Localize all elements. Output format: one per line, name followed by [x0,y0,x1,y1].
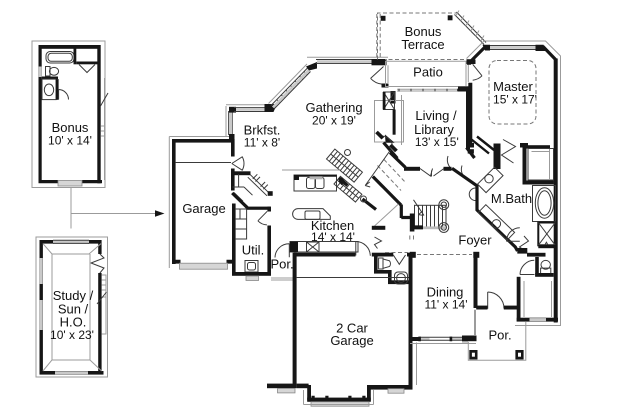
svg-text:Terrace: Terrace [401,37,444,52]
svg-text:15' x 17': 15' x 17' [493,93,537,107]
svg-text:11' x 14': 11' x 14' [424,298,467,312]
svg-text:10' x 14': 10' x 14' [48,134,92,148]
svg-text:11' x 8': 11' x 8' [244,136,280,150]
svg-text:20' x 19': 20' x 19' [312,114,356,128]
svg-text:Garage: Garage [182,201,225,216]
svg-text:Por.: Por. [270,257,293,272]
svg-text:Living /: Living / [415,108,457,123]
svg-text:Patio: Patio [413,65,443,80]
svg-text:Por.: Por. [488,328,511,343]
svg-text:Garage: Garage [330,333,373,348]
svg-text:13' x 15': 13' x 15' [415,135,459,149]
svg-text:10' x 23': 10' x 23' [50,328,94,342]
svg-text:Foyer: Foyer [458,233,492,248]
svg-text:M.Bath: M.Bath [491,191,532,206]
svg-text:Util.: Util. [242,243,264,258]
